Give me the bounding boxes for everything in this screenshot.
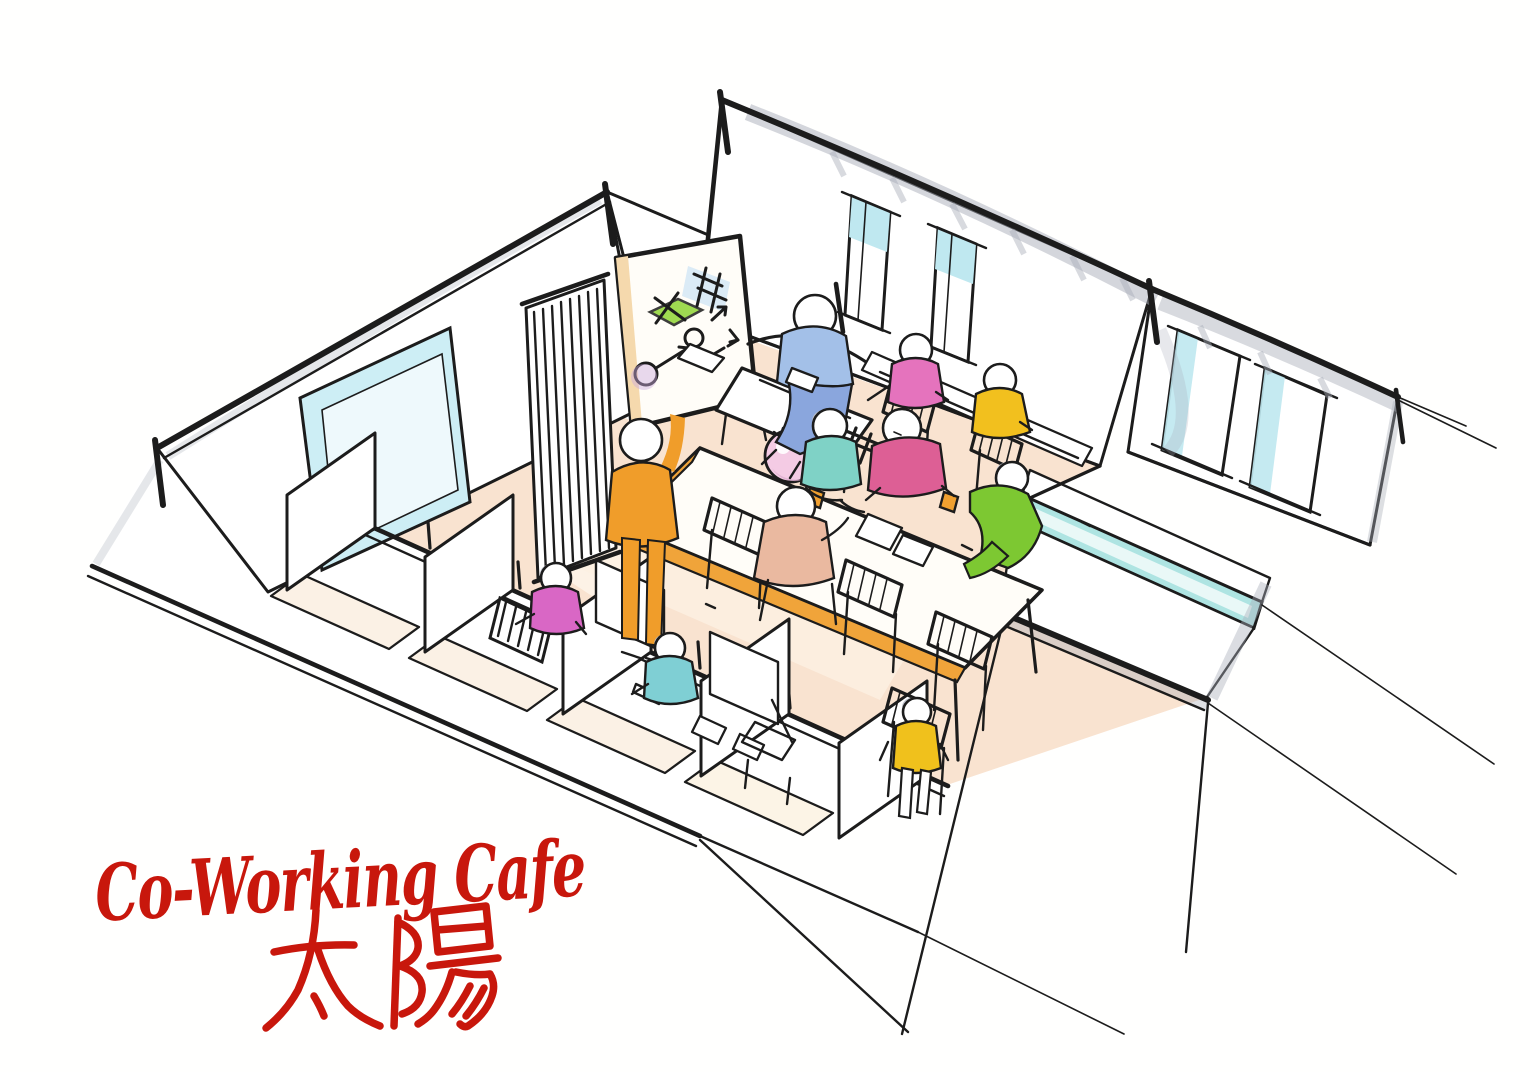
coworking-cafe-sketch: Co-Working Cafe xyxy=(0,0,1530,1072)
title: Co-Working Cafe xyxy=(93,823,587,1028)
title-line1: Co-Working Cafe xyxy=(93,823,587,940)
sketch-canvas: Co-Working Cafe xyxy=(0,0,1530,1072)
board-purple-halo xyxy=(631,364,657,390)
